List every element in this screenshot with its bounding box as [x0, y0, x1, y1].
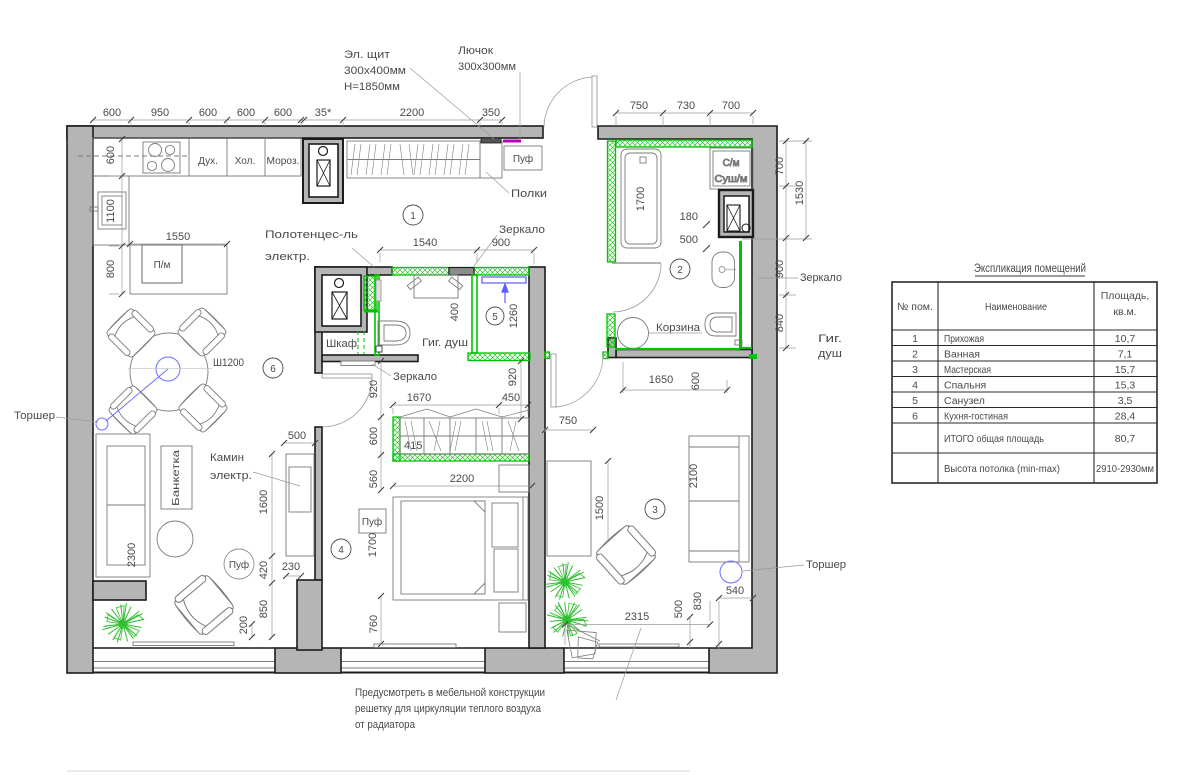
svg-text:1: 1 [912, 333, 918, 345]
svg-text:Ш1200: Ш1200 [213, 357, 244, 369]
svg-text:3: 3 [652, 505, 658, 516]
svg-text:750: 750 [559, 415, 577, 427]
svg-text:Шкаф: Шкаф [326, 338, 357, 350]
svg-text:920: 920 [507, 368, 519, 386]
svg-text:600: 600 [368, 427, 380, 445]
svg-text:кв.м.: кв.м. [1113, 306, 1136, 318]
svg-text:730: 730 [677, 100, 695, 112]
svg-text:5: 5 [492, 312, 498, 323]
svg-text:Спальня: Спальня [944, 380, 986, 392]
svg-text:7,1: 7,1 [1118, 349, 1133, 361]
svg-text:560: 560 [368, 470, 380, 488]
svg-text:500: 500 [288, 430, 306, 442]
svg-text:600: 600 [237, 107, 255, 119]
svg-text:1700: 1700 [367, 533, 379, 557]
svg-text:4: 4 [338, 545, 344, 556]
svg-text:Хол.: Хол. [235, 156, 256, 167]
svg-text:Зеркало: Зеркало [393, 371, 437, 383]
svg-text:Гиг. душ: Гиг. душ [422, 337, 468, 349]
svg-text:600: 600 [274, 107, 292, 119]
svg-text:10,7: 10,7 [1115, 333, 1136, 345]
svg-text:П/м: П/м [154, 260, 171, 271]
svg-text:электр.: электр. [210, 470, 252, 482]
svg-text:900: 900 [774, 260, 786, 278]
svg-text:950: 950 [151, 107, 169, 119]
svg-text:Зеркало: Зеркало [800, 272, 842, 284]
svg-text:2100: 2100 [688, 464, 700, 488]
svg-text:2200: 2200 [400, 107, 424, 119]
svg-text:№ пом.: № пом. [897, 301, 933, 313]
svg-text:15,3: 15,3 [1115, 380, 1136, 392]
svg-text:Экспликация помещений: Экспликация помещений [974, 263, 1086, 275]
svg-text:2: 2 [677, 265, 683, 276]
svg-text:920: 920 [368, 380, 380, 398]
svg-text:1670: 1670 [407, 392, 431, 404]
svg-text:Полки: Полки [511, 188, 547, 200]
svg-text:700: 700 [774, 157, 786, 175]
svg-text:Пуф: Пуф [513, 153, 533, 165]
svg-text:Ванная: Ванная [944, 349, 980, 361]
svg-text:решетку для циркуляции теплого: решетку для циркуляции теплого воздуха [355, 703, 542, 715]
svg-text:Дух.: Дух. [198, 156, 218, 167]
svg-text:Камин: Камин [210, 452, 244, 464]
svg-text:415: 415 [404, 440, 422, 452]
svg-text:Торшер: Торшер [14, 410, 55, 422]
svg-text:Суш/м: Суш/м [715, 174, 748, 185]
svg-text:электр.: электр. [265, 251, 310, 263]
svg-text:1550: 1550 [166, 231, 190, 243]
svg-text:Прихожая: Прихожая [944, 333, 984, 345]
svg-text:80,7: 80,7 [1115, 433, 1136, 445]
svg-text:830: 830 [692, 592, 704, 610]
svg-text:500: 500 [673, 600, 685, 618]
svg-text:600: 600 [690, 372, 702, 390]
svg-text:H=1850мм: H=1850мм [344, 81, 400, 93]
svg-text:600: 600 [105, 146, 117, 164]
svg-text:2910-2930мм: 2910-2930мм [1096, 463, 1154, 475]
svg-text:1500: 1500 [594, 496, 606, 520]
svg-text:300х400мм: 300х400мм [344, 65, 406, 77]
svg-text:Пуф: Пуф [229, 559, 249, 571]
svg-text:3,5: 3,5 [1118, 395, 1133, 407]
svg-text:28,4: 28,4 [1115, 411, 1136, 423]
svg-text:900: 900 [492, 237, 510, 249]
svg-text:1540: 1540 [413, 237, 437, 249]
svg-text:350: 350 [482, 107, 500, 119]
svg-text:Наименование: Наименование [985, 301, 1047, 313]
svg-text:2: 2 [912, 349, 918, 361]
svg-text:Банкетка: Банкетка [171, 449, 182, 506]
svg-text:Зеркало: Зеркало [499, 224, 545, 236]
svg-text:1260: 1260 [508, 304, 520, 328]
svg-text:300х300мм: 300х300мм [458, 61, 516, 73]
svg-text:750: 750 [630, 100, 648, 112]
svg-text:450: 450 [502, 392, 520, 404]
svg-text:600: 600 [103, 107, 121, 119]
svg-text:800: 800 [105, 260, 117, 278]
svg-text:5: 5 [912, 395, 918, 407]
svg-text:Корзина: Корзина [656, 322, 701, 334]
svg-text:2300: 2300 [126, 543, 138, 567]
svg-text:Торшер: Торшер [806, 559, 846, 571]
svg-text:Мастерская: Мастерская [944, 364, 991, 376]
svg-text:35*: 35* [315, 107, 332, 119]
svg-text:700: 700 [722, 100, 740, 112]
svg-text:Пуф: Пуф [362, 516, 382, 528]
svg-text:1530: 1530 [794, 181, 806, 205]
svg-text:3: 3 [912, 364, 918, 376]
svg-text:760: 760 [368, 615, 380, 633]
svg-text:840: 840 [774, 314, 786, 332]
svg-text:420: 420 [258, 561, 270, 579]
svg-text:400: 400 [449, 303, 461, 321]
svg-text:2200: 2200 [450, 473, 474, 485]
svg-text:15,7: 15,7 [1115, 364, 1136, 376]
svg-text:Высота потолка (min-max): Высота потолка (min-max) [944, 463, 1060, 475]
svg-text:850: 850 [258, 600, 270, 618]
svg-text:230: 230 [282, 561, 300, 573]
svg-text:180: 180 [680, 211, 698, 223]
svg-text:1650: 1650 [649, 374, 673, 386]
svg-text:Мороз.: Мороз. [267, 156, 300, 167]
svg-text:1: 1 [410, 211, 416, 222]
svg-text:Полотенцес-ль: Полотенцес-ль [265, 229, 358, 241]
svg-text:4: 4 [912, 380, 918, 392]
svg-text:Эл. щит: Эл. щит [344, 49, 390, 61]
svg-text:душ: душ [818, 348, 842, 360]
svg-text:Площадь,: Площадь, [1101, 290, 1150, 302]
svg-text:6: 6 [912, 411, 918, 423]
svg-text:Гиг.: Гиг. [818, 333, 842, 345]
svg-text:Кухня-гостиная: Кухня-гостиная [944, 411, 1008, 423]
svg-text:от радиатора: от радиатора [355, 719, 416, 731]
svg-text:1700: 1700 [635, 187, 647, 211]
svg-text:Лючок: Лючок [458, 45, 493, 57]
svg-text:С/м: С/м [723, 158, 740, 169]
svg-text:Предусмотреть в мебельной конс: Предусмотреть в мебельной конструкции [355, 687, 545, 699]
svg-text:1100: 1100 [105, 199, 117, 223]
svg-text:200: 200 [238, 616, 250, 634]
svg-text:540: 540 [726, 585, 744, 597]
svg-text:6: 6 [270, 364, 276, 375]
svg-text:2315: 2315 [625, 611, 649, 623]
svg-text:1600: 1600 [258, 490, 270, 514]
svg-text:Санузел: Санузел [944, 395, 985, 407]
svg-text:ИТОГО общая площадь: ИТОГО общая площадь [944, 433, 1044, 445]
svg-text:600: 600 [199, 107, 217, 119]
svg-text:500: 500 [680, 234, 698, 246]
